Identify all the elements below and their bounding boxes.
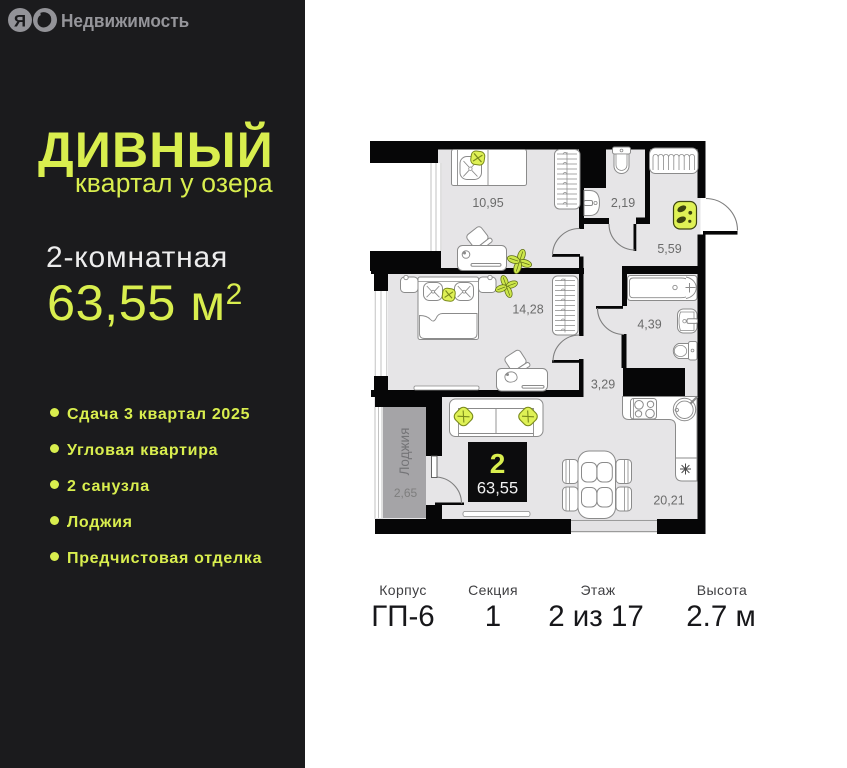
svg-text:20,21: 20,21 <box>653 494 684 508</box>
svg-text:2: 2 <box>490 448 506 479</box>
svg-text:14,28: 14,28 <box>512 303 543 317</box>
svg-text:63,55: 63,55 <box>477 480 518 498</box>
svg-text:2,65: 2,65 <box>394 486 418 500</box>
svg-text:5,59: 5,59 <box>657 242 681 256</box>
svg-text:2,19: 2,19 <box>611 196 635 210</box>
svg-text:4,39: 4,39 <box>637 318 661 332</box>
svg-text:3,29: 3,29 <box>591 378 615 392</box>
svg-text:Лоджия: Лоджия <box>397 428 412 476</box>
svg-text:10,95: 10,95 <box>472 196 503 210</box>
